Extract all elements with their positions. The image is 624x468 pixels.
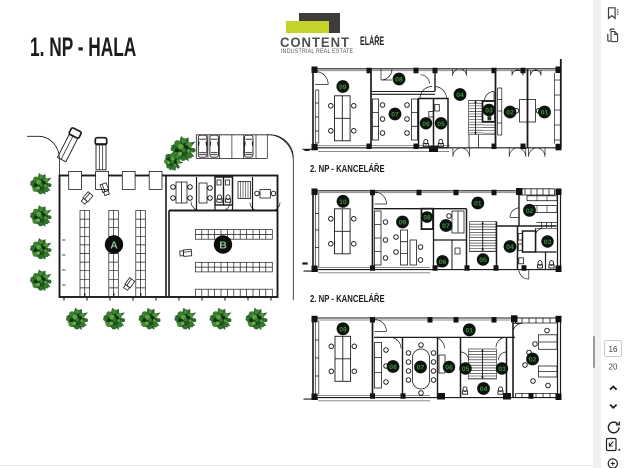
- svg-text:04: 04: [506, 244, 514, 251]
- svg-text:09: 09: [399, 220, 407, 227]
- svg-text:09: 09: [339, 326, 347, 333]
- svg-text:08: 08: [423, 214, 431, 221]
- svg-text:02: 02: [529, 357, 537, 364]
- svg-text:01: 01: [474, 201, 482, 208]
- svg-text:07: 07: [442, 223, 450, 230]
- svg-text:06: 06: [422, 121, 430, 128]
- svg-text:01: 01: [466, 327, 474, 334]
- svg-text:07: 07: [391, 112, 399, 119]
- svg-text:03: 03: [544, 239, 552, 246]
- svg-text:09: 09: [339, 84, 347, 91]
- svg-text:10: 10: [339, 199, 347, 206]
- svg-text:02: 02: [526, 208, 534, 215]
- svg-text:06: 06: [445, 365, 453, 372]
- svg-text:02: 02: [506, 110, 514, 117]
- svg-text:07: 07: [417, 365, 425, 372]
- svg-text:05: 05: [462, 366, 470, 373]
- svg-text:04: 04: [456, 92, 464, 99]
- svg-text:16: 16: [609, 345, 618, 354]
- svg-text:03: 03: [485, 108, 493, 115]
- svg-text:05: 05: [479, 257, 487, 264]
- svg-text:20: 20: [609, 363, 618, 372]
- svg-text:A: A: [110, 239, 118, 251]
- svg-text:04: 04: [480, 386, 488, 393]
- svg-text:03: 03: [498, 366, 506, 373]
- svg-text:01: 01: [541, 110, 549, 117]
- svg-text:B: B: [219, 239, 227, 251]
- svg-text:08: 08: [389, 364, 397, 371]
- svg-text:08: 08: [395, 77, 403, 84]
- svg-text:06: 06: [439, 259, 447, 266]
- svg-text:05: 05: [437, 121, 445, 128]
